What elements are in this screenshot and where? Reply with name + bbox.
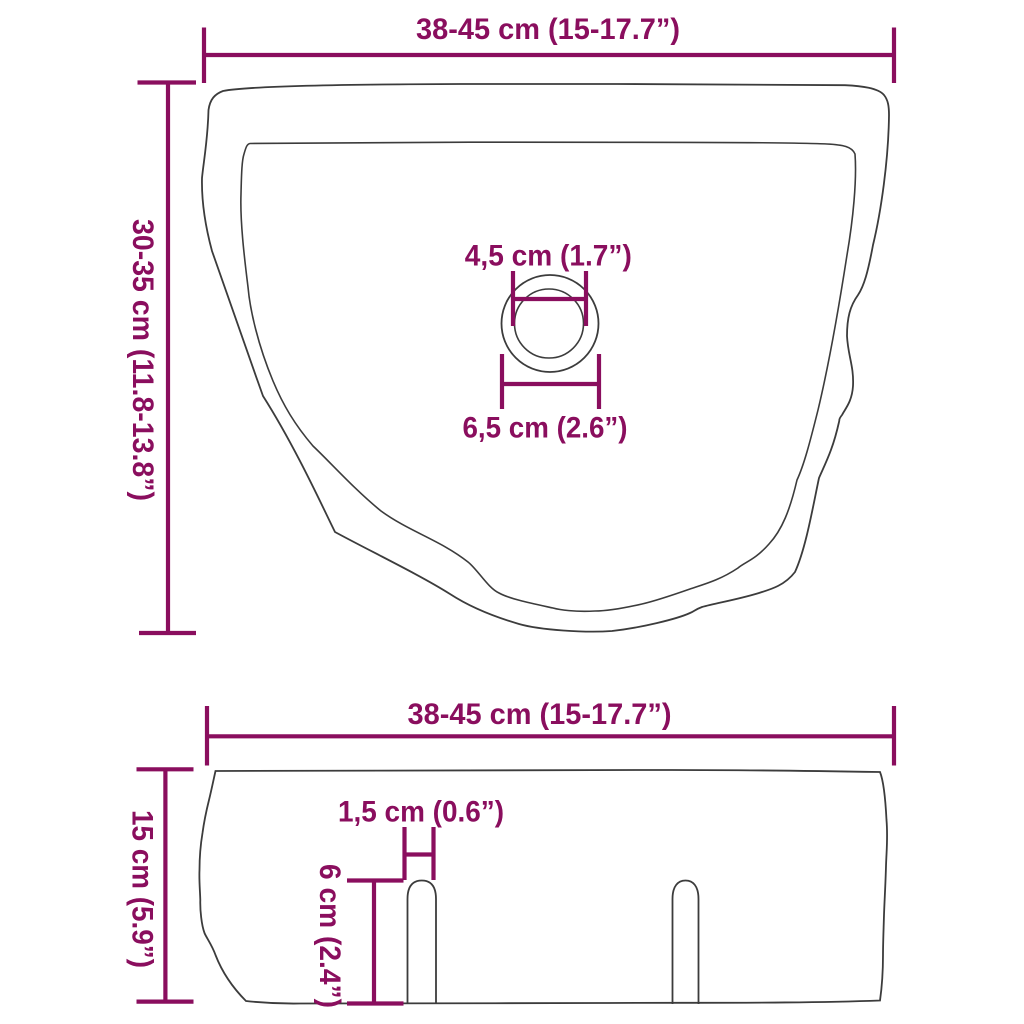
svg-text:6 cm (2.4”): 6 cm (2.4”)	[313, 864, 346, 1008]
svg-text:6,5 cm (2.6”): 6,5 cm (2.6”)	[463, 412, 628, 445]
svg-text:38-45 cm (15-17.7”): 38-45 cm (15-17.7”)	[408, 698, 672, 731]
svg-text:15 cm (5.9”): 15 cm (5.9”)	[126, 810, 159, 968]
svg-text:1,5 cm (0.6”): 1,5 cm (0.6”)	[338, 796, 504, 829]
svg-text:38-45 cm (15-17.7”): 38-45 cm (15-17.7”)	[416, 13, 680, 46]
svg-text:30-35 cm (11.8-13.8”): 30-35 cm (11.8-13.8”)	[126, 219, 159, 501]
svg-text:4,5 cm (1.7”): 4,5 cm (1.7”)	[465, 240, 632, 273]
